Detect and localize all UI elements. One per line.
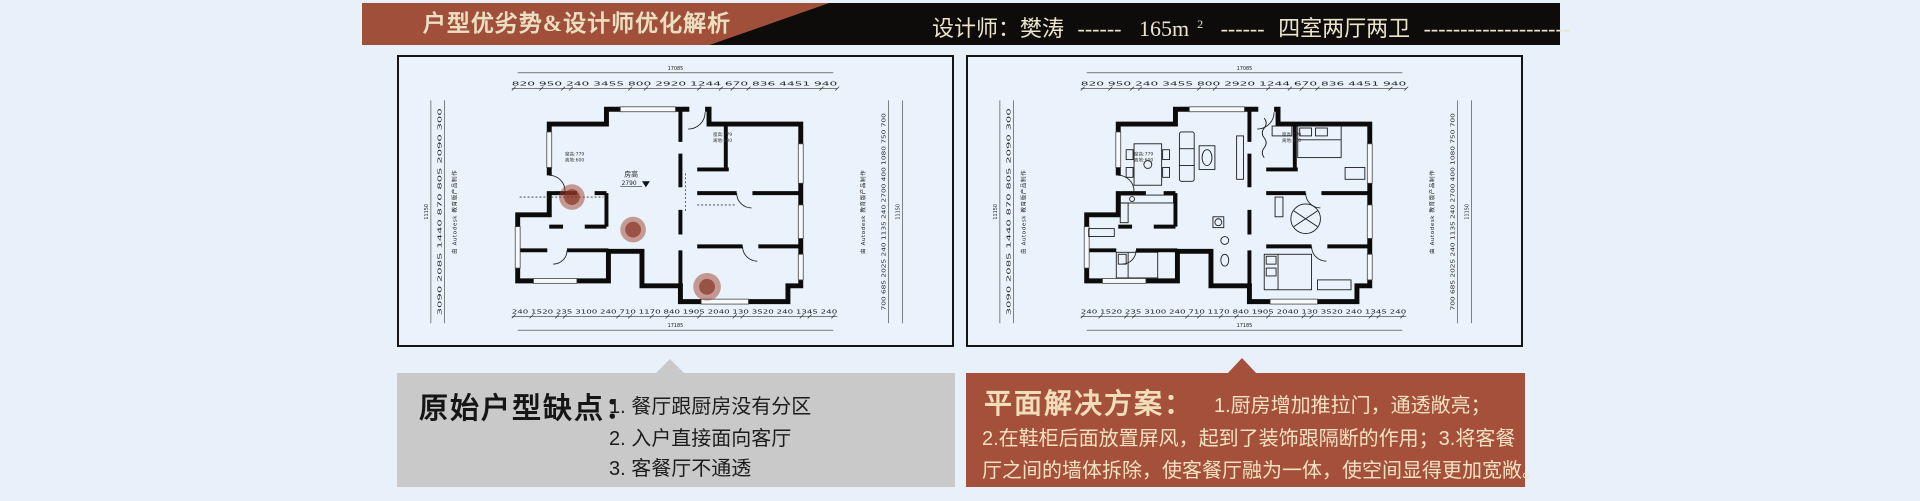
dim-bottom-total: 17185 xyxy=(668,323,684,329)
dim-right-total: 11150 xyxy=(1464,204,1470,220)
ceiling-height-label: 房高 xyxy=(624,169,638,178)
solution-heading: 平面解决方案： xyxy=(984,382,1194,422)
area-value: 165m2 xyxy=(1135,16,1207,41)
dim-bottom-chain: 240 1520 235 3100 240 710 1170 840 1905 … xyxy=(1081,309,1406,315)
defects-pointer-triangle xyxy=(655,359,685,374)
svg-text:窗高:779: 窗高:779 xyxy=(713,131,732,138)
dim-right-total: 11150 xyxy=(895,204,901,220)
autodesk-watermark-right: 由 Autodesk 教育版产品制作 xyxy=(859,170,867,254)
dim-top-chain: 820 950 240 3455 800 2920 1244 670 836 4… xyxy=(1081,82,1406,88)
ceiling-height-value: 2790 xyxy=(622,181,637,187)
dash-separator: ------ xyxy=(1221,16,1265,41)
dim-left-chain: 3090 2085 1440 870 805 2090 300 xyxy=(438,108,444,315)
banner-title: 户型优劣势&设计师优化解析 xyxy=(362,3,792,45)
dim-left-total: 11150 xyxy=(424,204,430,220)
svg-text:窗高:779: 窗高:779 xyxy=(1134,151,1153,158)
dim-right-chain: 700 685 2025 240 1135 240 2700 400 1080 … xyxy=(882,113,888,310)
optimized-floorplan-box: 17085 820 950 240 3455 800 2920 1244 670… xyxy=(966,55,1523,347)
dim-top-total: 17085 xyxy=(668,66,684,72)
defects-box: 原始户型缺点： 1. 餐厅跟厨房没有分区 2. 入户直接面向客厅 3. 客餐厅不… xyxy=(397,373,955,487)
defects-heading: 原始户型缺点： xyxy=(419,385,636,427)
autodesk-watermark-left: 由 Autodesk 教育版产品制作 xyxy=(451,170,459,254)
dim-bottom-chain: 240 1520 235 3100 240 710 1170 840 1905 … xyxy=(512,309,837,315)
optimized-floorplan-drawing: 17085 820 950 240 3455 800 2920 1244 670… xyxy=(968,57,1521,345)
solution-line-3: 厅之间的墙体拆除，使客餐厅融为一体，使空间显得更加宽敞。 xyxy=(982,454,1542,483)
area-superscript: 2 xyxy=(1197,17,1203,31)
furniture-layer xyxy=(1089,118,1365,290)
outer-walls xyxy=(1087,109,1370,301)
solution-point-1: 1.厨房增加推拉门，通透敞亮； xyxy=(1214,389,1491,418)
header-banner: 户型优劣势&设计师优化解析 设计师：樊涛 ------ 165m2 ------… xyxy=(362,3,1560,45)
autodesk-watermark-right: 由 Autodesk 教育版产品制作 xyxy=(1428,170,1436,254)
svg-text:窗高:779: 窗高:779 xyxy=(565,151,584,158)
page: 户型优劣势&设计师优化解析 设计师：樊涛 ------ 165m2 ------… xyxy=(0,0,1920,501)
windows xyxy=(1084,107,1372,304)
dim-left-total: 11150 xyxy=(993,204,999,220)
dim-top-chain: 820 950 240 3455 800 2920 1244 670 836 4… xyxy=(512,82,837,88)
autodesk-watermark-left: 由 Autodesk 教育版产品制作 xyxy=(1020,170,1028,254)
svg-text:离地:600: 离地:600 xyxy=(565,157,584,164)
room-layout: 四室两厅两卫 xyxy=(1278,16,1410,41)
svg-text:离地:600: 离地:600 xyxy=(1282,137,1301,144)
solution-pointer-triangle xyxy=(1227,358,1257,374)
designer-name: 设计师：樊涛 xyxy=(932,16,1064,41)
outer-walls xyxy=(518,109,801,301)
dim-right-chain: 700 685 2025 240 1135 240 2700 400 1080 … xyxy=(1451,113,1457,310)
svg-text:离地:600: 离地:600 xyxy=(1134,157,1153,164)
svg-text:离地:600: 离地:600 xyxy=(713,137,732,144)
dash-separator: ------ xyxy=(1078,16,1122,41)
solution-box: 平面解决方案： 1.厨房增加推拉门，通透敞亮； 2.在鞋柜后面放置屏风，起到了装… xyxy=(966,373,1525,487)
dim-top-total: 17085 xyxy=(1237,66,1253,72)
ceiling-height-marker xyxy=(642,181,650,187)
window-notes: 窗高:779 离地:600 窗高:779 离地:600 xyxy=(565,131,732,164)
dim-bottom-total: 17185 xyxy=(1237,323,1253,329)
windows xyxy=(515,107,803,304)
defect-item-2: 2. 入户直接面向客厅 xyxy=(609,422,791,451)
defect-item-3: 3. 客餐厅不通透 xyxy=(609,452,751,481)
dim-left-chain: 3090 2085 1440 870 805 2090 300 xyxy=(1007,108,1013,315)
banner-info: 设计师：樊涛 ------ 165m2 ------ 四室两厅两卫 ------… xyxy=(928,3,1574,45)
original-floorplan-drawing: 17085 820 950 240 3455 800 2920 1244 670… xyxy=(399,57,952,345)
original-floorplan-box: 17085 820 950 240 3455 800 2920 1244 670… xyxy=(397,55,954,347)
defect-item-1: 1. 餐厅跟厨房没有分区 xyxy=(609,390,811,419)
dash-separator: -------------------- xyxy=(1424,16,1571,41)
solution-line-2: 2.在鞋柜后面放置屏风，起到了装饰跟隔断的作用；3.将客餐 xyxy=(982,422,1515,451)
